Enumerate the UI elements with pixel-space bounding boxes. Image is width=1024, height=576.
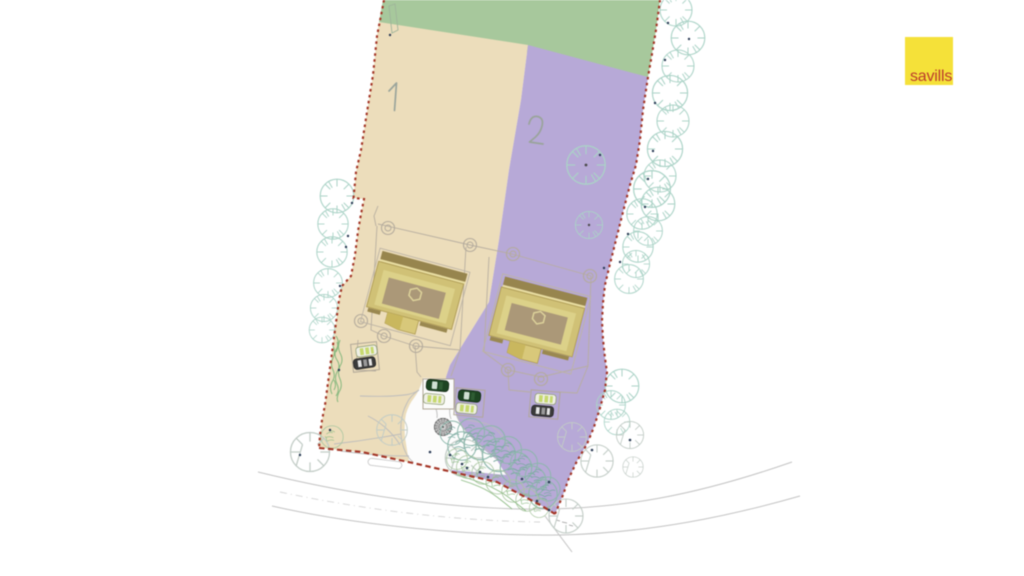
svg-text:savills: savills [910,68,952,85]
